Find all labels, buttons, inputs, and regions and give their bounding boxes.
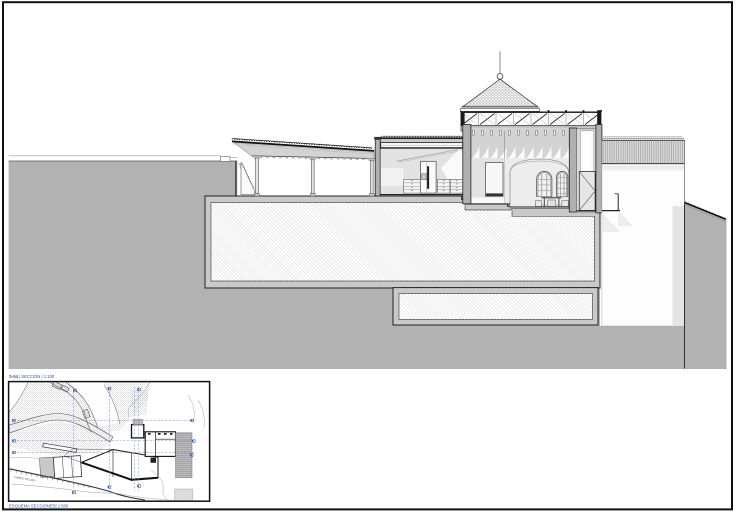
svg-text:S-04 | SECCION | 1:100: S-04 | SECCION | 1:100 xyxy=(9,374,55,379)
svg-text:ESQUEMA SECCIONES| 1:500: ESQUEMA SECCIONES| 1:500 xyxy=(9,503,69,508)
